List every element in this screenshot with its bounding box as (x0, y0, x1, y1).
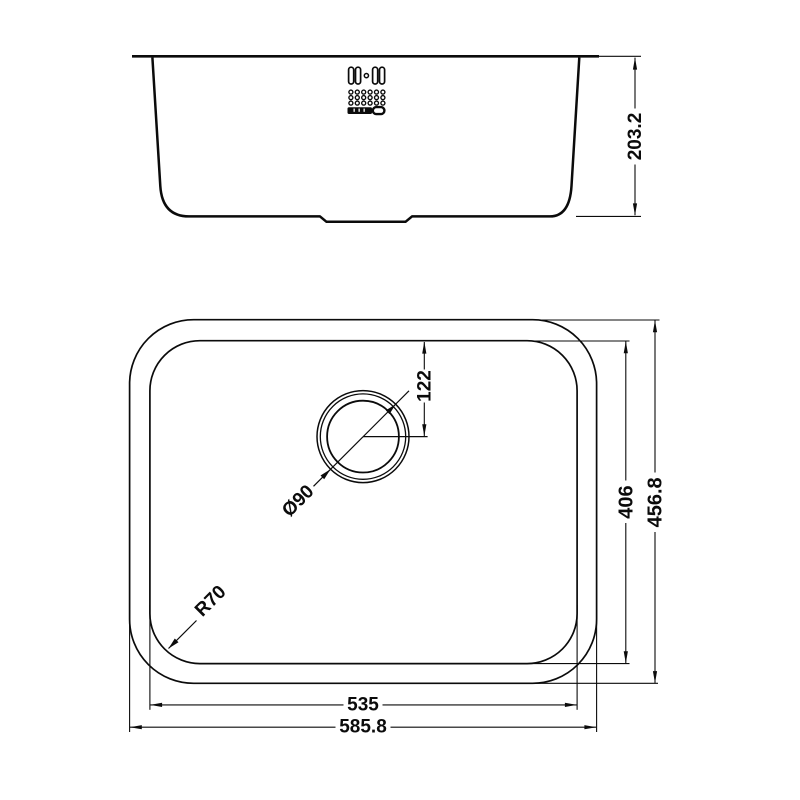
svg-text:R70: R70 (191, 582, 230, 621)
svg-text:203.2: 203.2 (625, 113, 646, 161)
svg-text:585.8: 585.8 (339, 717, 387, 738)
svg-text:456.8: 456.8 (645, 477, 667, 527)
svg-text:Ø90: Ø90 (278, 481, 318, 521)
svg-text:122: 122 (414, 370, 435, 402)
svg-text:535: 535 (347, 694, 379, 715)
svg-text:406: 406 (615, 485, 637, 518)
